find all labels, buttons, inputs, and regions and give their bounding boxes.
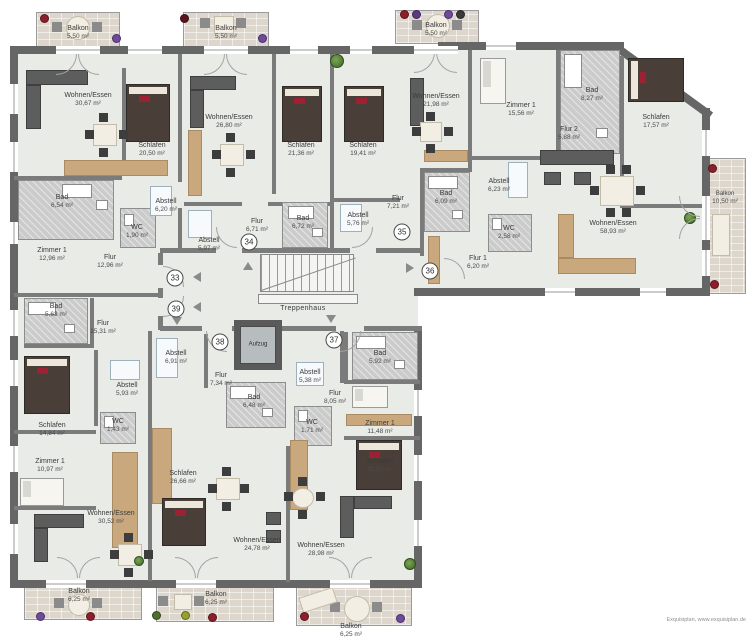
chair-symbol <box>606 165 615 174</box>
room-label-schlafen: Schlafen11,52 m² <box>366 458 393 474</box>
chair-symbol <box>194 596 204 606</box>
room-label-wohnen-essen: Wohnen/Essen21,98 m² <box>412 93 459 109</box>
chair-symbol <box>99 148 108 157</box>
room-label-balkon: Balkon5,50 m² <box>215 25 237 41</box>
room-label-wohnen-essen: Wohnen/Essen58,93 m² <box>589 220 636 236</box>
wall <box>344 380 420 384</box>
flower-symbol <box>456 10 465 19</box>
wall <box>620 56 624 158</box>
chair-symbol <box>222 502 231 511</box>
room-label-bad: Bad6,72 m² <box>292 215 314 231</box>
chair-symbol <box>622 208 631 217</box>
room-label-zimmer1: Zimmer 115,56 m² <box>506 102 536 118</box>
room-label-balkon: Balkon6,25 m² <box>68 588 90 604</box>
wall <box>178 54 182 182</box>
chair-symbol <box>452 20 462 30</box>
balcony-door <box>330 580 370 588</box>
floor-plan: Balkon5,50 m² Wohnen/Essen30,67 m² Schla… <box>0 0 750 640</box>
window <box>414 455 422 481</box>
watermark: Exquisiplan, www.exquisiplan.de <box>640 617 746 623</box>
sink-symbol <box>64 324 75 333</box>
window <box>640 288 666 296</box>
sink-symbol <box>394 360 405 369</box>
flower-symbol <box>208 613 217 622</box>
chair-symbol <box>622 165 631 174</box>
room-label-bad: Bad5,92 m² <box>369 350 391 366</box>
balcony-door <box>204 46 248 54</box>
window <box>10 142 18 172</box>
bed-symbol <box>628 58 684 102</box>
wall <box>14 506 96 510</box>
room-label-flur2: Flur 25,88 m² <box>558 126 580 142</box>
sofa-symbol <box>190 90 204 128</box>
room-label-balkon: Balkon5,50 m² <box>67 25 89 41</box>
kitchen-counter-symbol <box>152 428 172 504</box>
balcony-door <box>414 46 458 54</box>
flower-symbol <box>86 612 95 621</box>
window <box>10 310 18 336</box>
wall <box>438 42 624 50</box>
wall <box>468 50 472 172</box>
arrow-up-icon <box>243 262 253 270</box>
room-label-flur: Flur6,71 m² <box>246 218 268 234</box>
arrow-down-icon <box>326 315 336 323</box>
room-label-abstell: Abstell5,97 m² <box>198 237 220 253</box>
window <box>414 390 422 416</box>
chair-symbol <box>124 533 133 542</box>
flower-symbol <box>36 612 45 621</box>
shelf-symbol <box>508 162 528 198</box>
single-bed-symbol <box>480 58 506 104</box>
flower-symbol <box>300 612 309 621</box>
balcony-table-symbol <box>344 596 370 622</box>
dining-table-symbol <box>220 144 244 166</box>
dining-table-symbol <box>292 488 314 508</box>
bathtub-symbol <box>564 54 582 88</box>
shelf-symbol <box>110 360 140 380</box>
window <box>702 130 710 156</box>
bed-symbol <box>126 84 170 142</box>
apartment-number-39: 39 <box>168 301 185 318</box>
window <box>128 46 162 54</box>
balcony-door <box>56 46 100 54</box>
chair-symbol <box>92 22 102 32</box>
lounger-symbol <box>712 214 730 256</box>
room-label-bad: Bad6,54 m² <box>51 194 73 210</box>
dining-table-symbol <box>420 122 442 142</box>
wall <box>204 334 208 388</box>
room-label-zimmer1: Zimmer 112,96 m² <box>37 247 67 263</box>
room-label-schlafen: Schlafen20,50 m² <box>138 142 165 158</box>
room-label-flur: Flur7,21 m² <box>387 195 409 211</box>
room-label-schlafen: Schlafen26,66 m² <box>169 470 196 486</box>
wall <box>272 54 276 194</box>
apartment-number-38: 38 <box>212 334 229 351</box>
chair-symbol <box>200 18 210 28</box>
room-label-abstell: Abstell6,91 m² <box>165 350 187 366</box>
chair-symbol <box>222 467 231 476</box>
plant-symbol <box>134 556 144 566</box>
bathtub-symbol <box>428 176 458 189</box>
room-label-wohnen-essen: Wohnen/Essen28,98 m² <box>297 542 344 558</box>
chair-symbol <box>208 484 217 493</box>
chair-symbol <box>298 510 307 519</box>
wall <box>376 248 422 253</box>
chair-symbol <box>606 208 615 217</box>
chair-symbol <box>54 598 64 608</box>
sink-symbol <box>452 210 463 219</box>
shelf-symbol <box>188 210 212 238</box>
single-bed-symbol <box>20 478 64 506</box>
wall <box>178 208 182 252</box>
sofa-symbol <box>190 76 236 90</box>
plant-symbol <box>330 54 344 68</box>
arrow-left-icon <box>193 302 201 312</box>
room-label-abstell: Abstell5,76 m² <box>347 212 369 228</box>
sofa-symbol <box>540 150 614 165</box>
room-label-schlafen: Schlafen17,57 m² <box>642 114 669 130</box>
chair-symbol <box>226 133 235 142</box>
flower-symbol <box>258 34 267 43</box>
room-label-bad: Bad8,27 m² <box>581 87 603 103</box>
flower-symbol <box>40 14 49 23</box>
apartment-number-34: 34 <box>241 234 258 251</box>
balcony-door <box>46 580 86 588</box>
kitchen-counter-symbol <box>64 160 168 176</box>
wall <box>158 253 163 265</box>
room-label-flur: Flur7,34 m² <box>210 372 232 388</box>
apartment-number-33: 33 <box>167 270 184 287</box>
room-label-wohnen-essen: Wohnen/Essen24,78 m² <box>233 537 280 553</box>
kitchen-counter-symbol <box>558 214 574 258</box>
arrow-right-icon <box>406 263 414 273</box>
flower-symbol <box>181 611 190 620</box>
chair-symbol <box>240 484 249 493</box>
chair-symbol <box>444 127 453 136</box>
kitchen-counter-symbol <box>188 130 202 196</box>
room-label-schlafen: Schlafen21,36 m² <box>287 142 314 158</box>
stairwell-label: Treppenhaus <box>280 305 325 313</box>
room-label-zimmer1: Zimmer 111,48 m² <box>365 420 395 436</box>
chair-symbol <box>284 492 293 501</box>
sofa-symbol <box>34 514 84 528</box>
room-label-balkon: Balkon6,25 m² <box>340 623 362 639</box>
wall <box>24 344 94 348</box>
room-label-balkon: Balkon6,25 m² <box>205 591 227 607</box>
room-label-balkon: Balkon5,50 m² <box>425 22 447 38</box>
room-label-wohnen-essen: Wohnen/Essen26,80 m² <box>205 114 252 130</box>
chair-symbol <box>99 113 108 122</box>
chair-symbol <box>85 130 94 139</box>
chair-symbol <box>212 150 221 159</box>
arrow-left-icon <box>193 272 201 282</box>
flower-symbol <box>400 10 409 19</box>
room-label-schlafen: Schlafen14,84 m² <box>38 422 65 438</box>
room-label-flur: Flur15,31 m² <box>90 320 116 336</box>
chair-symbol <box>124 568 133 577</box>
room-label-balkon: Balkon10,50 m² <box>712 191 738 205</box>
chair-symbol <box>590 186 599 195</box>
chair-symbol <box>426 112 435 121</box>
arrow-down-icon <box>172 317 182 325</box>
wall <box>184 202 242 206</box>
room-label-bad: Bad6,09 m² <box>435 190 457 206</box>
window <box>290 46 318 54</box>
sink-symbol <box>596 128 608 138</box>
chair-symbol <box>412 20 422 30</box>
dining-table-symbol <box>216 478 240 500</box>
room-label-schlafen: Schlafen19,41 m² <box>349 142 376 158</box>
room-label-zimmer1: Zimmer 110,97 m² <box>35 458 65 474</box>
armchair-symbol <box>574 172 591 185</box>
elevator-label: Aufzug <box>249 342 268 349</box>
room-label-abstell: Abstell6,23 m² <box>488 178 510 194</box>
bed-symbol <box>162 498 206 546</box>
sofa-symbol <box>340 496 354 538</box>
apartment-number-35: 35 <box>394 224 411 241</box>
flower-symbol <box>112 34 121 43</box>
room-label-abstell: Abstell6,20 m² <box>155 198 177 214</box>
sink-symbol <box>96 200 108 210</box>
room-label-abstell: Abstell5,38 m² <box>299 369 321 385</box>
chair-symbol <box>236 18 246 28</box>
flower-symbol <box>444 10 453 19</box>
room-label-bad: Bad6,48 m² <box>243 394 265 410</box>
wall <box>94 350 98 426</box>
chair-symbol <box>52 22 62 32</box>
chair-symbol <box>92 598 102 608</box>
room-label-wc: WC1,71 m² <box>301 419 323 435</box>
window <box>10 446 18 472</box>
chair-symbol <box>298 477 307 486</box>
plant-symbol <box>404 558 416 570</box>
armchair-symbol <box>544 172 561 185</box>
dining-table-symbol <box>600 176 634 206</box>
room-label-flur: Flur12,96 m² <box>97 254 123 270</box>
window <box>414 520 422 546</box>
room-label-abstell: Abstell5,93 m² <box>116 382 138 398</box>
balcony-door <box>702 196 710 240</box>
flower-symbol <box>396 614 405 623</box>
bed-symbol <box>344 86 384 142</box>
sofa-symbol <box>26 85 41 129</box>
room-label-flur1: Flur 16,20 m² <box>467 255 489 271</box>
chair-symbol <box>372 602 382 612</box>
room-label-wc: WC1,90 m² <box>126 224 148 240</box>
apartment-number-37: 37 <box>326 332 343 349</box>
wall <box>160 326 202 331</box>
wall <box>364 326 422 331</box>
room-label-bad: Bad5,63 m² <box>45 303 67 319</box>
chair-symbol <box>636 186 645 195</box>
room-label-wc: WC1,43 m² <box>107 418 129 434</box>
room-label-wc: WC2,58 m² <box>498 225 520 241</box>
chair-symbol <box>158 596 168 606</box>
window <box>350 46 372 54</box>
flower-symbol <box>708 164 717 173</box>
dining-table-symbol <box>93 124 117 146</box>
window <box>10 84 18 114</box>
wall <box>330 54 334 252</box>
room-label-flur: Flur8,05 m² <box>324 390 346 406</box>
wall <box>14 293 160 297</box>
kitchen-counter-symbol <box>558 258 636 274</box>
bed-symbol <box>282 86 322 142</box>
chair-symbol <box>226 168 235 177</box>
window <box>10 360 18 386</box>
bed-symbol <box>24 356 70 414</box>
chair-symbol <box>119 130 128 139</box>
apartment-number-36: 36 <box>422 263 439 280</box>
chair-symbol <box>144 550 153 559</box>
window <box>702 250 710 276</box>
window <box>486 42 516 50</box>
single-bed-symbol <box>352 386 388 408</box>
room-label-wohnen-essen: Wohnen/Essen30,52 m² <box>87 510 134 526</box>
room-label-wohnen-essen: Wohnen/Essen30,67 m² <box>64 92 111 108</box>
balcony-table-symbol <box>174 594 192 610</box>
stairs-landing <box>258 294 358 304</box>
flower-symbol <box>152 611 161 620</box>
chair-symbol <box>110 550 119 559</box>
armchair-symbol <box>266 512 281 525</box>
flower-symbol <box>710 280 719 289</box>
wall <box>414 288 440 296</box>
window <box>10 222 18 244</box>
chair-symbol <box>316 492 325 501</box>
window <box>10 524 18 554</box>
sofa-symbol <box>354 496 392 509</box>
chair-symbol <box>426 144 435 153</box>
chair-symbol <box>412 127 421 136</box>
wall <box>242 248 350 253</box>
balcony-door <box>176 580 216 588</box>
window <box>545 288 575 296</box>
sofa-symbol <box>34 528 48 562</box>
flower-symbol <box>412 10 421 19</box>
chair-symbol <box>246 150 255 159</box>
bathtub-symbol <box>356 336 386 349</box>
flower-symbol <box>180 14 189 23</box>
